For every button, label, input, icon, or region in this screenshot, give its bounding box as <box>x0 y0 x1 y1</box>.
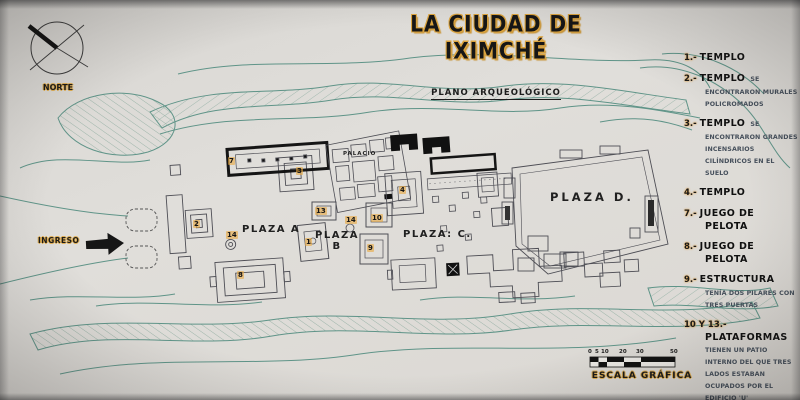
scale-tick: 5 <box>595 349 599 355</box>
compass-label: NORTE <box>30 83 86 92</box>
structure-marker: 9 <box>367 244 374 252</box>
entrance-label: INGRESO <box>38 236 79 245</box>
ingreso-arrow-icon <box>85 232 124 256</box>
page-subtitle: PLANO ARQUEOLÓGICO <box>431 88 561 100</box>
compass-rose-icon <box>29 22 88 74</box>
structure-marker: 8 <box>237 271 244 279</box>
structure-marker: 3 <box>296 167 303 175</box>
archaeological-map-sign: LA CIUDAD DE IXIMCHÉ PLANO ARQUEOLÓGICO … <box>0 0 800 400</box>
structure-marker: 14 <box>226 231 238 239</box>
plaza-d-structures <box>502 146 668 274</box>
legend-item: 7.-JUEGO DE PELOTA <box>684 206 798 231</box>
legend-item: 4.-TEMPLO <box>684 185 798 198</box>
legend-item: 10 Y 13.-PLATAFORMAS TIENEN UN PATIO INT… <box>684 317 798 400</box>
south-structures <box>387 243 640 310</box>
plaza-c-label: PLAZA: C. <box>403 229 472 240</box>
scale-tick: 10 <box>601 349 609 355</box>
structure-marker: 7 <box>228 157 235 165</box>
structure-marker: 4 <box>399 186 406 194</box>
plaza-b-label: PLAZA B <box>314 230 360 252</box>
scale-tick: 20 <box>619 349 627 355</box>
map-title-block: LA CIUDAD DE IXIMCHÉ PLANO ARQUEOLÓGICO <box>362 13 630 100</box>
scale-tick: 30 <box>636 349 644 355</box>
plaza-d-label: PLAZA D. <box>550 190 634 204</box>
scale-tick: 50 <box>670 349 678 355</box>
legend-item: 1.-TEMPLO <box>684 50 798 63</box>
legend-item: 2.-TEMPLO SE ENCONTRARON MURALES POLICRO… <box>684 71 798 108</box>
page-title: LA CIUDAD DE IXIMCHÉ <box>362 10 630 64</box>
palace-label: PALACIO <box>343 151 376 157</box>
structure-marker: 10 <box>371 214 383 222</box>
contour-lines <box>0 53 790 374</box>
scale-label: ESCALA GRÁFICA <box>582 371 702 381</box>
legend-item: 3.-TEMPLO SE ENCONTRARON GRANDES INCENSA… <box>684 116 798 177</box>
legend-item: 8.-JUEGO DE PELOTA <box>684 239 798 264</box>
scale-bar <box>590 357 675 367</box>
structure-marker: 14 <box>345 216 357 224</box>
legend-item: 9.-ESTRUCTURA TENÍA DOS PILARES CON TRES… <box>684 272 798 309</box>
legend: 1.-TEMPLO 2.-TEMPLO SE ENCONTRARON MURAL… <box>684 50 798 400</box>
scale-tick: 0 <box>588 349 592 355</box>
structure-marker: 1 <box>305 238 312 246</box>
structure-marker: 2 <box>193 220 200 228</box>
entrance-causeway <box>126 209 157 268</box>
structure-marker: 13 <box>315 207 327 215</box>
plaza-a-label: PLAZA A <box>242 224 300 235</box>
